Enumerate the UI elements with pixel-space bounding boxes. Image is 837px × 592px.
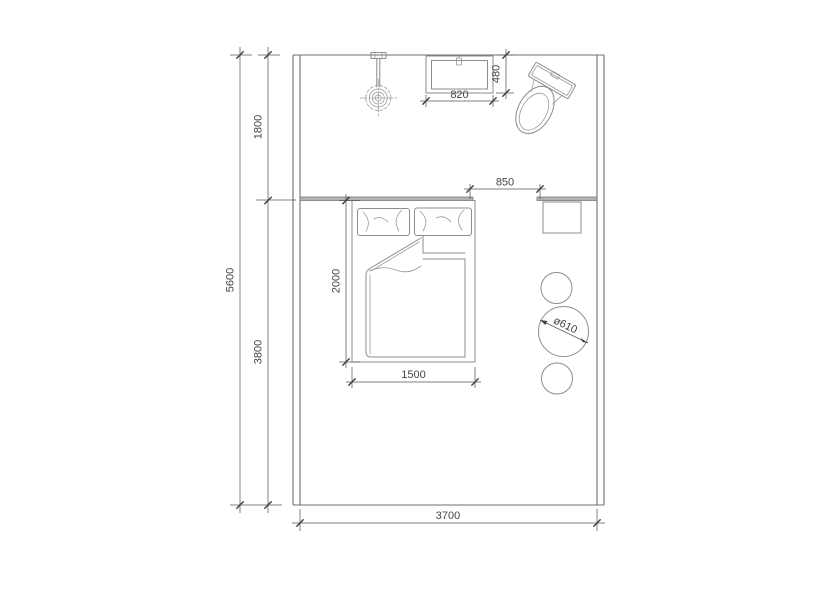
shower-fixture	[360, 53, 397, 118]
dim-label-bed-length: 2000	[331, 269, 343, 293]
dim-label-bed-width: 1500	[401, 369, 425, 381]
pillow-left	[358, 209, 410, 236]
basin-faucet	[457, 58, 462, 65]
dim-label-total-depth: 5600	[225, 268, 237, 292]
basin-outer	[426, 56, 493, 93]
shower-crosshair	[360, 79, 397, 117]
pillow-left-outline	[358, 209, 410, 236]
dim-label-table-diameter: ø610	[551, 315, 579, 337]
dim-label-upper-zone: 1800	[253, 115, 265, 139]
dim-zone-depths: 1800 3800	[253, 47, 297, 513]
bedside-table	[543, 202, 581, 233]
right-wall	[597, 55, 604, 505]
dim-opening-width: 850	[464, 177, 546, 200]
washbasin	[426, 56, 493, 93]
floor-plan: 5600 1800 3800 3700 820 480 850 2000 150…	[0, 0, 837, 592]
dim-basin-depth: 480	[491, 49, 515, 99]
left-wall	[293, 55, 300, 505]
stool-bottom	[542, 363, 573, 394]
dim-label-opening-width: 850	[496, 177, 514, 189]
dim-label-basin-width: 820	[450, 89, 468, 101]
duvet	[366, 236, 465, 357]
duvet-outline	[366, 238, 465, 357]
dim-label-room-width: 3700	[436, 510, 460, 522]
dim-arrow-left	[540, 320, 547, 325]
toilet-tank	[528, 62, 576, 99]
toilet-seat	[513, 88, 555, 135]
dim-room-width: 3700	[292, 509, 605, 531]
partition-wall	[300, 197, 597, 201]
pillow-right	[415, 208, 472, 236]
duvet-fold-hem	[371, 242, 419, 271]
partition-left-segment	[300, 197, 473, 201]
dim-bed-width: 1500	[346, 367, 481, 388]
floor-plan-canvas: 5600 1800 3800 3700 820 480 850 2000 150…	[0, 0, 837, 592]
bed-frame	[352, 201, 475, 363]
toilet	[502, 62, 576, 144]
dim-basin-width: 820	[420, 89, 499, 107]
pillow-left-wrinkles	[363, 210, 402, 231]
stool-top	[541, 273, 572, 304]
bed	[352, 201, 475, 363]
dim-table-diameter: ø610	[540, 315, 588, 343]
toilet-bowl	[508, 80, 562, 141]
partition-right-segment	[537, 197, 597, 201]
dim-bed-length: 2000	[331, 194, 361, 368]
dim-label-basin-depth: 480	[491, 65, 503, 83]
dim-label-lower-zone: 3800	[253, 340, 265, 364]
toilet-tank-inner	[531, 65, 572, 95]
pillow-right-wrinkles	[420, 210, 464, 231]
duvet-top-wavy-edge	[369, 266, 421, 272]
duvet-hem	[423, 253, 465, 259]
